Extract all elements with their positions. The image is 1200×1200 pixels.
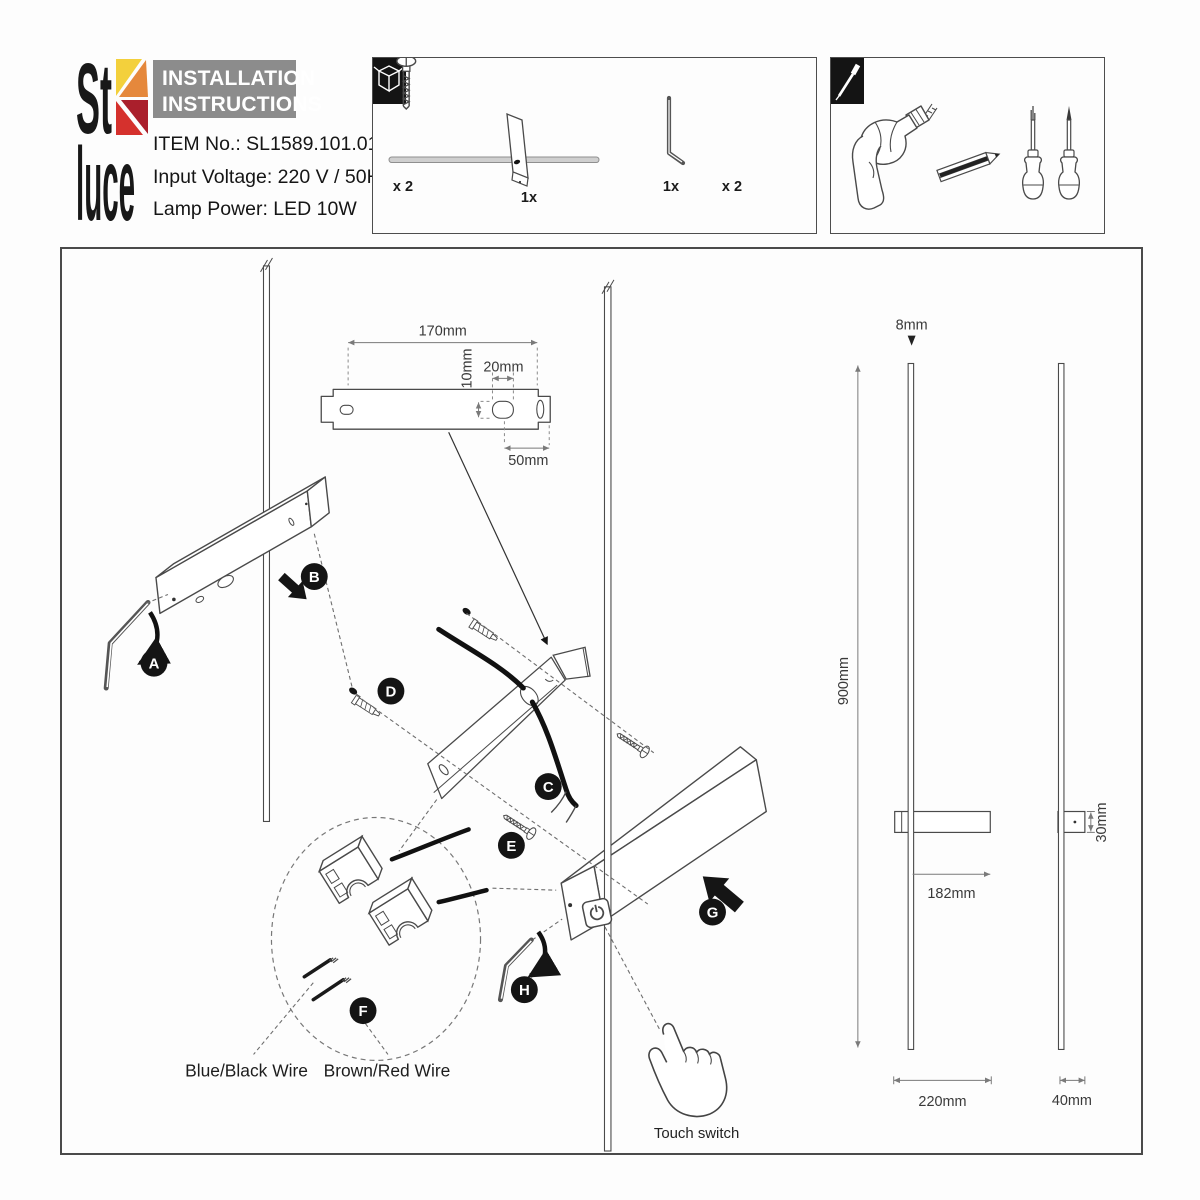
dim-rod-height: 900mm	[836, 657, 852, 705]
svg-text:G: G	[707, 905, 719, 922]
instruction-sheet: St luce INSTALLATION INSTRUCTIONS ITEM N…	[0, 0, 1200, 1200]
step-badge-d: D	[377, 678, 404, 705]
dim-slot-width: 20mm	[483, 359, 523, 375]
step-badge-g: G	[699, 899, 726, 926]
svg-text:F: F	[358, 1003, 367, 1020]
logo-triangles-icon	[116, 59, 148, 135]
wire-label-left: Blue/Black Wire	[185, 1060, 308, 1080]
screw-qty-label: x 2	[393, 179, 413, 195]
touch-switch-label: Touch switch	[654, 1125, 739, 1142]
svg-text:C: C	[543, 779, 554, 796]
step-badge-e: E	[498, 832, 525, 859]
lamp-qty-label: 1x	[521, 190, 537, 206]
main-diagram-box: 170mm 10mm 20mm 50mm	[60, 247, 1143, 1155]
step-badge-h: H	[511, 976, 538, 1003]
package-contents-box: 1x 1x x 2 x 2	[372, 57, 817, 234]
svg-text:H: H	[519, 982, 530, 999]
drill-drawing	[852, 104, 937, 209]
dim-body-length: 220mm	[918, 1094, 966, 1110]
title-line-2: INSTRUCTIONS	[162, 92, 296, 118]
dimension-views	[858, 336, 1095, 1085]
dim-bracket-length: 170mm	[419, 324, 467, 340]
st-luce-logo: St luce	[72, 56, 154, 226]
wiring-detail	[254, 817, 487, 1060]
tools-required-box	[830, 57, 1105, 234]
svg-text:A: A	[149, 656, 160, 673]
lamp-drawing	[389, 114, 599, 186]
dim-slot-height: 10mm	[460, 348, 476, 388]
dim-slot-offset: 50mm	[508, 453, 548, 469]
wall-anchor-upper	[461, 606, 499, 643]
step-badge-f: F	[350, 997, 377, 1024]
pencil-drawing	[937, 148, 1001, 181]
screw-upper	[614, 729, 652, 760]
logo-text-luce: luce	[76, 127, 135, 226]
flat-screwdriver-drawing	[1023, 106, 1044, 199]
screwdriver-icon	[831, 58, 864, 104]
dim-body-offset: 182mm	[927, 886, 975, 902]
title-line-1: INSTALLATION	[162, 66, 296, 92]
phillips-screwdriver-drawing	[1059, 106, 1080, 199]
bracket-3d	[428, 647, 590, 798]
wire-label-right: Brown/Red Wire	[324, 1060, 451, 1080]
bracket-template	[321, 343, 550, 645]
wire-connector-2	[365, 878, 435, 945]
dim-body-depth: 40mm	[1052, 1093, 1092, 1109]
anchor-qty-label: x 2	[722, 179, 742, 195]
power-icon	[582, 898, 613, 929]
step-badge-c: C	[535, 773, 562, 800]
svg-text:E: E	[506, 838, 516, 855]
wall-anchor-left	[348, 686, 382, 719]
dim-rod-diameter: 8mm	[896, 318, 928, 334]
pointing-hand	[649, 1024, 727, 1117]
installation-diagram: 170mm 10mm 20mm 50mm	[62, 249, 1141, 1153]
title-banner: INSTALLATION INSTRUCTIONS	[153, 60, 296, 118]
svg-text:D: D	[386, 684, 397, 701]
hex-key-qty-label: 1x	[663, 179, 679, 195]
hex-key-drawing	[669, 98, 683, 163]
dim-body-height: 30mm	[1094, 802, 1110, 842]
step-badge-b: B	[301, 563, 328, 590]
wire-connector-1	[316, 836, 386, 903]
svg-text:B: B	[309, 569, 320, 586]
step-badge-a: A	[141, 650, 168, 677]
